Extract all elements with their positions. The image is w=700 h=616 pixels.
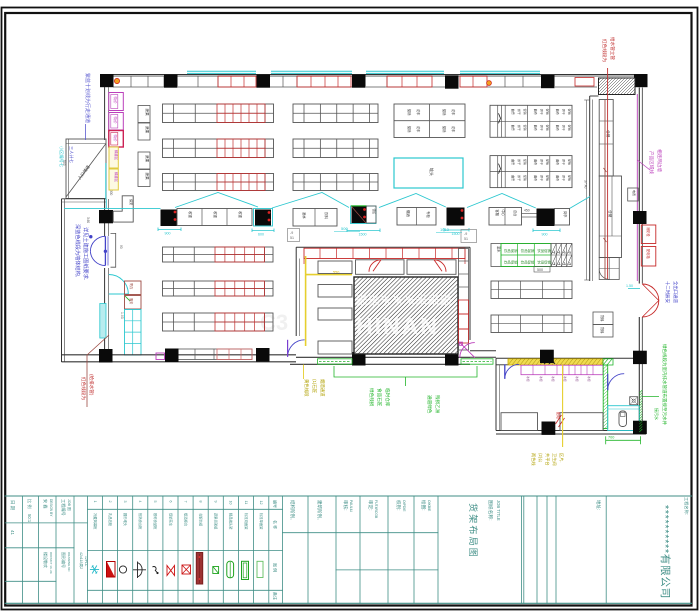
- svg-text:蔬果: 蔬果: [145, 173, 150, 181]
- svg-text:共平台: 共平台: [544, 453, 551, 466]
- svg-text:7: 7: [183, 501, 187, 503]
- svg-text:结构阶别,: 结构阶别,: [289, 500, 296, 520]
- svg-text:值班: 值班: [372, 209, 376, 215]
- svg-text:烟酒通道: 烟酒通道: [319, 379, 326, 397]
- svg-text:饼干: 饼干: [562, 109, 567, 115]
- svg-text:促销: 促销: [568, 159, 572, 165]
- svg-text:曲奇: 曲奇: [556, 109, 561, 115]
- svg-text:特价: 特价: [113, 117, 118, 125]
- svg-text:饮品促销: 饮品促销: [521, 248, 535, 253]
- svg-text:备注: 备注: [273, 592, 279, 600]
- svg-text:9: 9: [214, 501, 218, 503]
- svg-text:促销: 促销: [523, 109, 527, 115]
- svg-text:精品端头架: 精品端头架: [229, 513, 234, 530]
- svg-text:促销: 促销: [442, 109, 447, 116]
- svg-text:41: 41: [10, 530, 15, 536]
- svg-text:收银: 收银: [188, 211, 193, 218]
- svg-text:深蓝色线段为墙体结构,: 深蓝色线段为墙体结构,: [74, 224, 82, 277]
- svg-text:楼设敬欢: 楼设敬欢: [43, 552, 49, 568]
- svg-text:1.50: 1.50: [626, 284, 633, 288]
- svg-text:饼干: 饼干: [562, 175, 567, 181]
- svg-text:37.40: 37.40: [584, 180, 588, 189]
- svg-text:酒水: 酒水: [497, 246, 502, 253]
- svg-text:烟酒: 烟酒: [406, 210, 411, 217]
- svg-text:12PLC: 12PLC: [84, 556, 88, 567]
- svg-text:促销: 促销: [545, 175, 549, 181]
- svg-text:4: 4: [138, 501, 142, 503]
- svg-text:冰柜: 冰柜: [551, 376, 555, 382]
- svg-text:服务: 服务: [129, 298, 134, 305]
- svg-text:酒水: 酒水: [302, 212, 307, 219]
- svg-text:促销花车: 促销花车: [168, 513, 173, 527]
- svg-text:900: 900: [165, 231, 171, 235]
- svg-text:500: 500: [341, 226, 348, 231]
- svg-text:安 鑫: 安 鑫: [42, 499, 49, 509]
- svg-text:OIPDIE: OIPDIE: [402, 500, 406, 512]
- svg-text:曲奇: 曲奇: [533, 125, 538, 131]
- svg-text:饼干: 饼干: [539, 125, 544, 131]
- svg-text:散称食品柜: 散称食品柜: [153, 513, 158, 530]
- svg-text:促销: 促销: [407, 109, 412, 116]
- svg-text:花车: 花车: [416, 109, 421, 115]
- svg-text:1: 1: [93, 501, 97, 503]
- svg-text:51: 51: [290, 236, 294, 240]
- svg-text:3: 3: [123, 501, 127, 503]
- svg-text:电表: 电表: [632, 190, 637, 196]
- svg-text:绘图:: 绘图:: [420, 500, 427, 510]
- svg-text:-9: -9: [464, 232, 467, 236]
- svg-text:**********有限公司: **********有限公司: [659, 505, 672, 599]
- svg-text:黄色线段: 黄色线段: [303, 379, 310, 397]
- svg-text:名 称: 名 称: [273, 520, 279, 529]
- svg-text:乳品岛柜: 乳品岛柜: [108, 513, 113, 527]
- svg-text:花车: 花车: [416, 126, 421, 132]
- svg-text:比 例: 比 例: [26, 499, 33, 509]
- svg-text:收银台组: 收银台组: [198, 513, 203, 527]
- svg-text:地址:: 地址:: [596, 500, 602, 510]
- svg-text:给水管立管: 给水管立管: [609, 37, 616, 60]
- svg-text:曲奇: 曲奇: [533, 109, 538, 115]
- svg-text:绿色残损: 绿色残损: [368, 388, 375, 407]
- svg-text:蔬果: 蔬果: [145, 109, 150, 117]
- svg-text:促销: 促销: [545, 159, 549, 165]
- svg-text:曲奇: 曲奇: [533, 175, 538, 181]
- svg-text:促销: 促销: [568, 109, 572, 115]
- svg-text:货梯: 货梯: [600, 327, 605, 334]
- svg-text:岗亭: 岗亭: [563, 211, 568, 217]
- svg-text:消防栓: 消防栓: [646, 227, 651, 237]
- svg-text:8: 8: [198, 501, 202, 503]
- svg-text:小区编号七: 小区编号七: [58, 146, 65, 167]
- svg-text:12: 12: [259, 501, 263, 505]
- svg-text:51: 51: [464, 237, 468, 241]
- svg-text:冰柜: 冰柜: [539, 376, 543, 382]
- svg-text:曲奇: 曲奇: [511, 175, 516, 181]
- svg-text:保安: 保安: [129, 199, 134, 205]
- svg-text:配电: 配电: [556, 412, 561, 419]
- svg-text:蔬果货架组: 蔬果货架组: [214, 513, 219, 530]
- svg-text:饼干: 饼干: [517, 175, 522, 181]
- svg-text:审核:: 审核:: [342, 500, 349, 510]
- svg-text:6: 6: [168, 501, 172, 503]
- svg-text:1013: 1013: [440, 227, 450, 232]
- svg-text:紫蓝十划线为行走通道: 紫蓝十划线为行走通道: [84, 73, 91, 123]
- svg-text:专柜: 专柜: [426, 211, 431, 218]
- svg-text:曲奇: 曲奇: [556, 125, 561, 131]
- svg-text:冷藏风幕柜: 冷藏风幕柜: [93, 513, 98, 530]
- svg-text:工程编号: 工程编号: [60, 499, 67, 516]
- svg-text:详见土建施工图纸要求.: 详见土建施工图纸要求.: [82, 227, 90, 280]
- svg-text:3.60: 3.60: [86, 217, 90, 223]
- svg-text:堆头: 堆头: [429, 168, 435, 176]
- svg-text:饮品促销: 饮品促销: [537, 260, 551, 265]
- svg-text:饼干: 饼干: [562, 159, 567, 165]
- svg-text:饼干: 饼干: [539, 109, 544, 115]
- svg-text:FUT4RCGB: FUT4RCGB: [374, 500, 378, 519]
- svg-text:仓储: 仓储: [608, 210, 613, 218]
- svg-text:红色线段为: 红色线段为: [601, 39, 608, 62]
- svg-text:JOB TITLE: JOB TITLE: [496, 500, 501, 521]
- svg-text:冰柜: 冰柜: [575, 376, 579, 382]
- svg-text:收银: 收银: [213, 211, 218, 218]
- svg-text:饼干: 饼干: [517, 109, 522, 115]
- svg-text:图形编号: 图形编号: [61, 552, 67, 568]
- svg-text:通道绿色: 通道绿色: [426, 395, 433, 414]
- svg-text:饼干: 饼干: [517, 125, 522, 131]
- svg-text:促销: 促销: [523, 175, 527, 181]
- svg-text:烟酒柜台: 烟酒柜台: [183, 513, 188, 527]
- svg-text:特价: 特价: [113, 135, 118, 143]
- svg-text:10: 10: [229, 501, 233, 505]
- svg-text:客服: 客服: [495, 210, 500, 217]
- svg-text:5: 5: [153, 501, 157, 503]
- svg-text:DDPRCT 16. 2b: DDPRCT 16. 2b: [49, 552, 53, 574]
- svg-text:绿色线段为室内排水管道布置接至污水井: 绿色线段为室内排水管道布置接至污水井: [661, 344, 668, 425]
- svg-text:蔬果: 蔬果: [145, 155, 150, 163]
- svg-text:(给排水管): (给排水管): [88, 374, 95, 396]
- svg-text:花车: 花车: [451, 126, 456, 132]
- svg-text:审定:: 审定:: [367, 500, 374, 510]
- svg-text:11: 11: [244, 501, 248, 505]
- svg-text:DESIGN BY: DESIGN BY: [49, 499, 53, 517]
- svg-text:全出口通道: 全出口通道: [672, 281, 679, 304]
- svg-text:饼干: 饼干: [539, 175, 544, 181]
- svg-text:货梯: 货梯: [600, 315, 605, 322]
- svg-text:90: 90: [119, 245, 123, 249]
- svg-text:42x118周2: 42x118周2: [79, 552, 84, 569]
- svg-text:三人计七: 三人计七: [68, 146, 75, 163]
- svg-text:蔬果: 蔬果: [145, 126, 150, 134]
- svg-text:-9: -9: [290, 231, 293, 235]
- svg-text:中心: 中心: [501, 210, 506, 217]
- svg-text:临时仓库: 临时仓库: [384, 388, 391, 407]
- svg-text:OIKBIE: OIKBIE: [427, 500, 431, 512]
- svg-text:圆形堆头: 圆形堆头: [123, 513, 128, 527]
- svg-text:曲奇: 曲奇: [511, 125, 516, 131]
- svg-text:饼干: 饼干: [562, 125, 567, 131]
- svg-text:促销: 促销: [523, 159, 527, 165]
- svg-text:500: 500: [537, 268, 543, 272]
- svg-text:寄存: 寄存: [129, 283, 134, 290]
- svg-text:曲奇: 曲奇: [533, 159, 538, 165]
- svg-text:1500: 1500: [359, 232, 367, 236]
- svg-text:残损乙洲: 残损乙洲: [434, 395, 441, 414]
- svg-text:300: 300: [109, 190, 113, 196]
- svg-text:总台: 总台: [513, 210, 518, 216]
- svg-text:曲奇: 曲奇: [556, 175, 561, 181]
- svg-text:接污水: 接污水: [654, 408, 660, 420]
- svg-text:标准双面架: 标准双面架: [244, 513, 249, 530]
- svg-text:区片.: 区片.: [558, 453, 565, 463]
- svg-text:标准单面架: 标准单面架: [259, 513, 264, 530]
- svg-text:稱重区: 稱重区: [114, 172, 119, 183]
- svg-text:1.03: 1.03: [120, 312, 124, 319]
- svg-text:550: 550: [333, 271, 339, 275]
- svg-text:图 例: 图 例: [273, 563, 279, 572]
- svg-text:食品石匠: 食品石匠: [376, 388, 383, 407]
- svg-text:十二时辰安: 十二时辰安: [664, 281, 671, 304]
- svg-text:饼干: 饼干: [517, 159, 522, 165]
- svg-text:(2)公: (2)公: [538, 453, 543, 463]
- svg-text:700: 700: [608, 436, 614, 440]
- svg-text:曲奇: 曲奇: [511, 109, 516, 115]
- svg-text:600: 600: [258, 232, 264, 236]
- svg-text:促销: 促销: [568, 175, 572, 181]
- svg-text:饼干: 饼干: [539, 159, 544, 165]
- svg-text:曲奇: 曲奇: [556, 159, 561, 165]
- svg-text:仓储: 仓储: [606, 130, 611, 138]
- svg-text:50:1: 50:1: [27, 514, 32, 523]
- svg-text:900: 900: [542, 232, 548, 236]
- svg-text:2: 2: [108, 501, 112, 503]
- svg-text:饮品促销: 饮品促销: [504, 260, 518, 265]
- svg-text:米米米米米米米米: 米米米米米米米米: [355, 293, 452, 307]
- svg-text:促销: 促销: [523, 125, 527, 131]
- svg-text:PAULILI: PAULILI: [349, 500, 353, 512]
- svg-text:饮品促销: 饮品促销: [504, 248, 518, 253]
- svg-text:促销: 促销: [568, 125, 572, 131]
- svg-text:建筑阶别,: 建筑阶别,: [316, 500, 323, 520]
- svg-text:红色线段为: 红色线段为: [80, 377, 87, 400]
- svg-text:曲奇: 曲奇: [511, 159, 516, 165]
- svg-text:产品区域线: 产品区域线: [648, 151, 655, 174]
- svg-text:两色线: 两色线: [531, 453, 537, 466]
- svg-text:饮品促销: 饮品促销: [521, 260, 535, 265]
- svg-text:JOB 图: JOB 图: [67, 499, 71, 511]
- svg-text:DRAWING NC: DRAWING NC: [67, 552, 71, 572]
- svg-text:花车: 花车: [451, 109, 456, 115]
- svg-text:冰柜: 冰柜: [526, 376, 530, 382]
- svg-text:相连两边墙: 相连两边墙: [656, 149, 663, 172]
- svg-text:热熟食台柜: 热熟食台柜: [138, 513, 143, 530]
- svg-text:促销: 促销: [442, 126, 447, 133]
- svg-text:校别:: 校别:: [395, 500, 402, 510]
- svg-text:450: 450: [524, 209, 530, 213]
- svg-text:卫生间: 卫生间: [551, 453, 558, 466]
- svg-text:货架布局图: 货架布局图: [468, 503, 479, 559]
- svg-text:冰柜: 冰柜: [563, 376, 567, 382]
- svg-text:稱重区: 稱重区: [114, 150, 119, 161]
- svg-text:促销: 促销: [407, 126, 412, 133]
- svg-text:收银: 收银: [238, 211, 243, 218]
- svg-text:特价: 特价: [113, 97, 118, 105]
- svg-text:饮料: 饮料: [324, 212, 329, 219]
- svg-text:配电箱: 配电箱: [646, 249, 651, 259]
- svg-text:图纸名称:: 图纸名称:: [487, 500, 494, 521]
- svg-text:饮品促销: 饮品促销: [537, 248, 551, 253]
- svg-text:工程名称:: 工程名称:: [683, 497, 690, 515]
- svg-text:促销: 促销: [545, 109, 549, 115]
- svg-text:编号: 编号: [273, 500, 279, 508]
- svg-text:HINAN: HINAN: [356, 313, 439, 339]
- svg-text:促销: 促销: [545, 125, 549, 131]
- svg-text:冰柜: 冰柜: [587, 376, 591, 382]
